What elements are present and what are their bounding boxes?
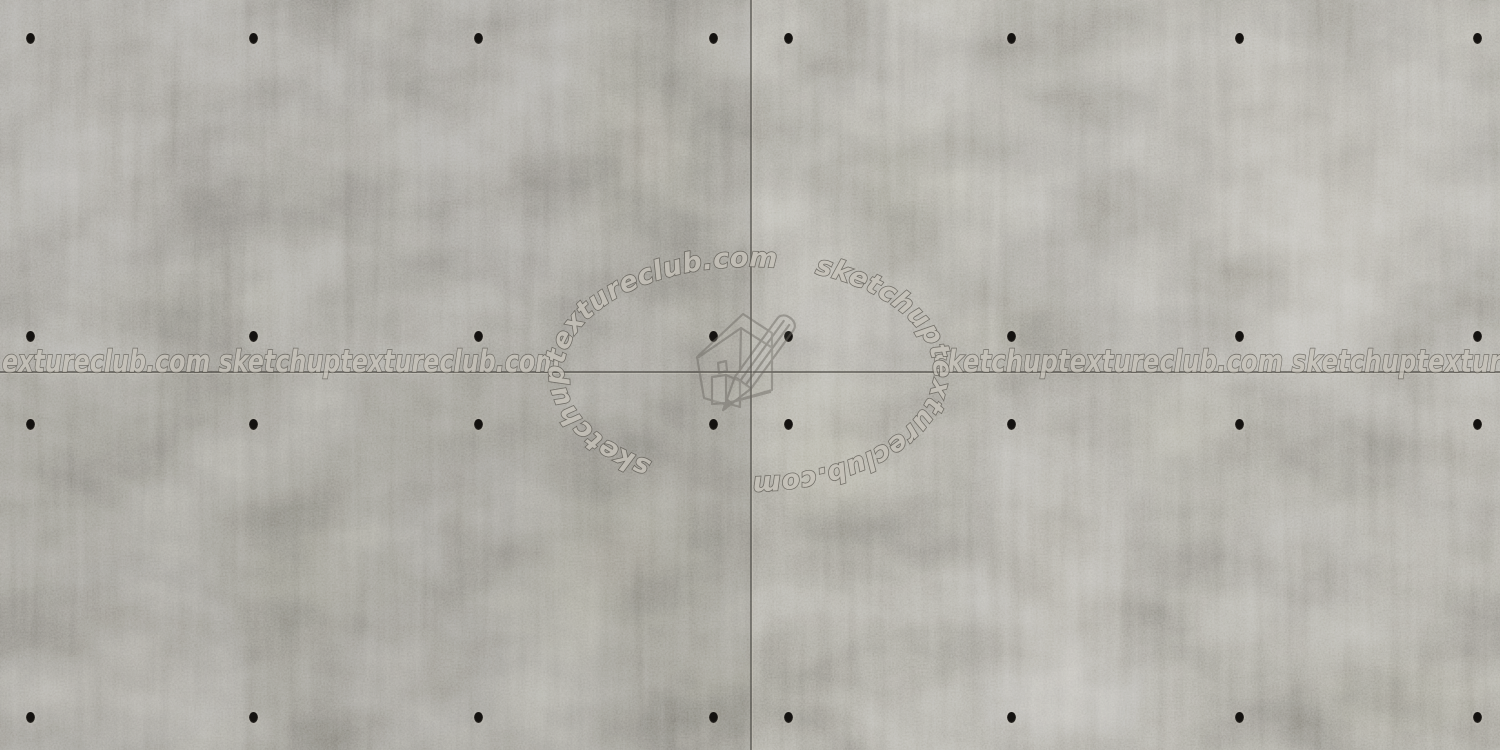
watermark-layer: extureclub.com sketchuptextureclub.com s… <box>0 0 1500 750</box>
watermark-band-left: extureclub.com sketchuptextureclub.com <box>2 344 560 380</box>
watermark-ring-text-lower: sketchuptextureclub.com <box>752 250 958 501</box>
sketchuptextureclub-logo <box>697 312 798 416</box>
concrete-texture-image: extureclub.com sketchuptextureclub.com s… <box>0 0 1500 750</box>
watermark-band-right: sketchuptextureclub.com sketchuptexture <box>933 344 1500 380</box>
